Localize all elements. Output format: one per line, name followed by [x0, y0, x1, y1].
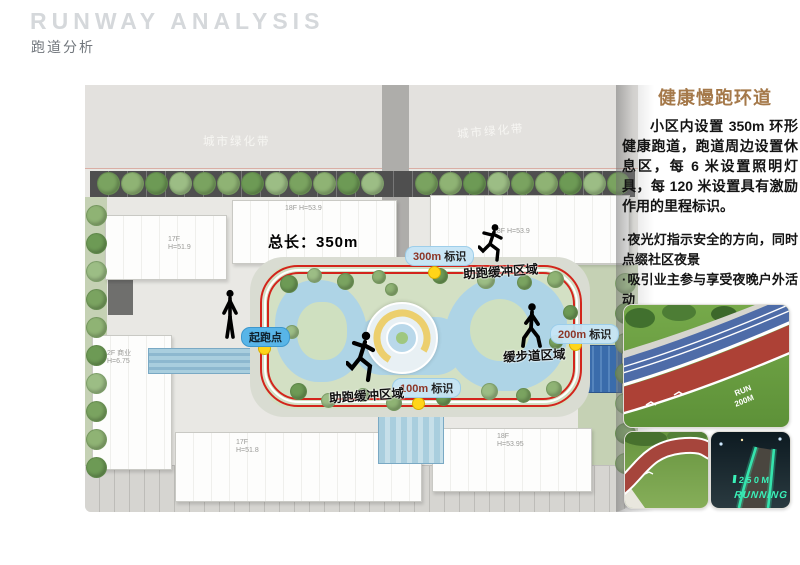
- marker-value: 100m: [400, 383, 428, 395]
- tree-icon: [121, 172, 144, 195]
- tree-icon: [439, 172, 462, 195]
- tree-icon: [463, 172, 486, 195]
- tree-icon: [169, 172, 192, 195]
- tree-icon: [372, 270, 386, 284]
- building-label: 18F H=53.95: [497, 433, 524, 449]
- distance-marker-dot-300m: [428, 266, 441, 279]
- section-heading: 健康慢跑环道: [630, 84, 800, 110]
- tree-icon: [280, 275, 298, 293]
- tree-icon: [86, 429, 107, 450]
- description-paragraph: 小区内设置 350m 环形健康跑道，跑道周边设置休息区，每 6 米设置照明灯具，…: [622, 116, 798, 216]
- photo-250m-text: 250M: [738, 475, 772, 485]
- tree-icon: [145, 172, 168, 195]
- walker-icon: [517, 302, 547, 350]
- tree-icon: [583, 172, 606, 195]
- tree-icon: [546, 381, 562, 397]
- building-label: 17F H=51.8: [236, 439, 259, 455]
- tree-icon: [511, 172, 534, 195]
- page-title-zh: 跑道分析: [31, 37, 95, 57]
- tree-icon: [86, 261, 107, 282]
- runner-icon: [346, 330, 378, 390]
- tree-icon: [265, 172, 288, 195]
- tree-icon: [563, 305, 578, 320]
- photo-running-text: RUNNING: [734, 490, 789, 501]
- lap-pool: [148, 348, 254, 374]
- tree-icon: [535, 172, 558, 195]
- tree-icon: [385, 283, 398, 296]
- building-label: 18F H=53.9: [285, 205, 322, 213]
- building-label: 17F H=51.9: [168, 236, 191, 252]
- standing-person-icon: [219, 289, 241, 341]
- tree-icon: [193, 172, 216, 195]
- tree-icon: [241, 172, 264, 195]
- tree-icon: [487, 172, 510, 195]
- tree-icon: [86, 373, 107, 394]
- tree-icon: [481, 383, 498, 400]
- tree-icon: [97, 172, 120, 195]
- start-point-pill: 起跑点: [241, 327, 290, 347]
- greenbelt-label-left: 城市绿化带: [203, 133, 271, 149]
- tree-icon: [337, 273, 354, 290]
- marker-value: 300m: [413, 251, 441, 263]
- photo-day-track: RUN 200M: [623, 304, 790, 428]
- tree-icon: [516, 388, 531, 403]
- site-plan-map: 城市绿化带 城市绿化带 17F H=51.9 18F H=53.9 18F H=…: [85, 85, 638, 512]
- tree-icon: [86, 457, 107, 478]
- marker-pill-200m: 200m 标识: [550, 324, 619, 344]
- marker-text: 标识: [431, 383, 453, 395]
- building-top-left: 17F H=51.9: [105, 215, 227, 280]
- building-label: 2F 商业 H=6.75: [107, 350, 131, 366]
- bullet-item: 夜光灯指示安全的方向，同时点缀社区夜景: [622, 230, 798, 270]
- tree-icon: [547, 271, 564, 288]
- total-length-label: 总长：350m: [268, 231, 358, 252]
- photo-night-track: 250M RUNNING: [710, 431, 791, 509]
- tree-icon: [86, 205, 107, 226]
- tree-icon: [217, 172, 240, 195]
- tree-icon: [86, 233, 107, 254]
- tree-icon: [559, 172, 582, 195]
- marker-text: 标识: [589, 329, 611, 341]
- tree-icon: [86, 345, 107, 366]
- tree-icon: [307, 268, 322, 283]
- tree-icon: [361, 172, 384, 195]
- distance-marker-dot-100m: [412, 397, 425, 410]
- tree-icon: [86, 317, 107, 338]
- tree-icon: [290, 383, 307, 400]
- marker-text: 标识: [444, 251, 466, 263]
- tree-icon: [86, 289, 107, 310]
- building-bottom-right: 18F H=53.95: [432, 428, 592, 492]
- tree-icon: [415, 172, 438, 195]
- tree-icon: [86, 401, 107, 422]
- city-road: [85, 85, 638, 169]
- tree-icon: [313, 172, 336, 195]
- runner-icon: [478, 223, 506, 265]
- tree-icon: [289, 172, 312, 195]
- photo-red-track: [624, 431, 709, 509]
- marker-value: 200m: [558, 329, 586, 341]
- page-title-en: RUNWAY ANALYSIS: [30, 8, 324, 35]
- tree-icon: [337, 172, 360, 195]
